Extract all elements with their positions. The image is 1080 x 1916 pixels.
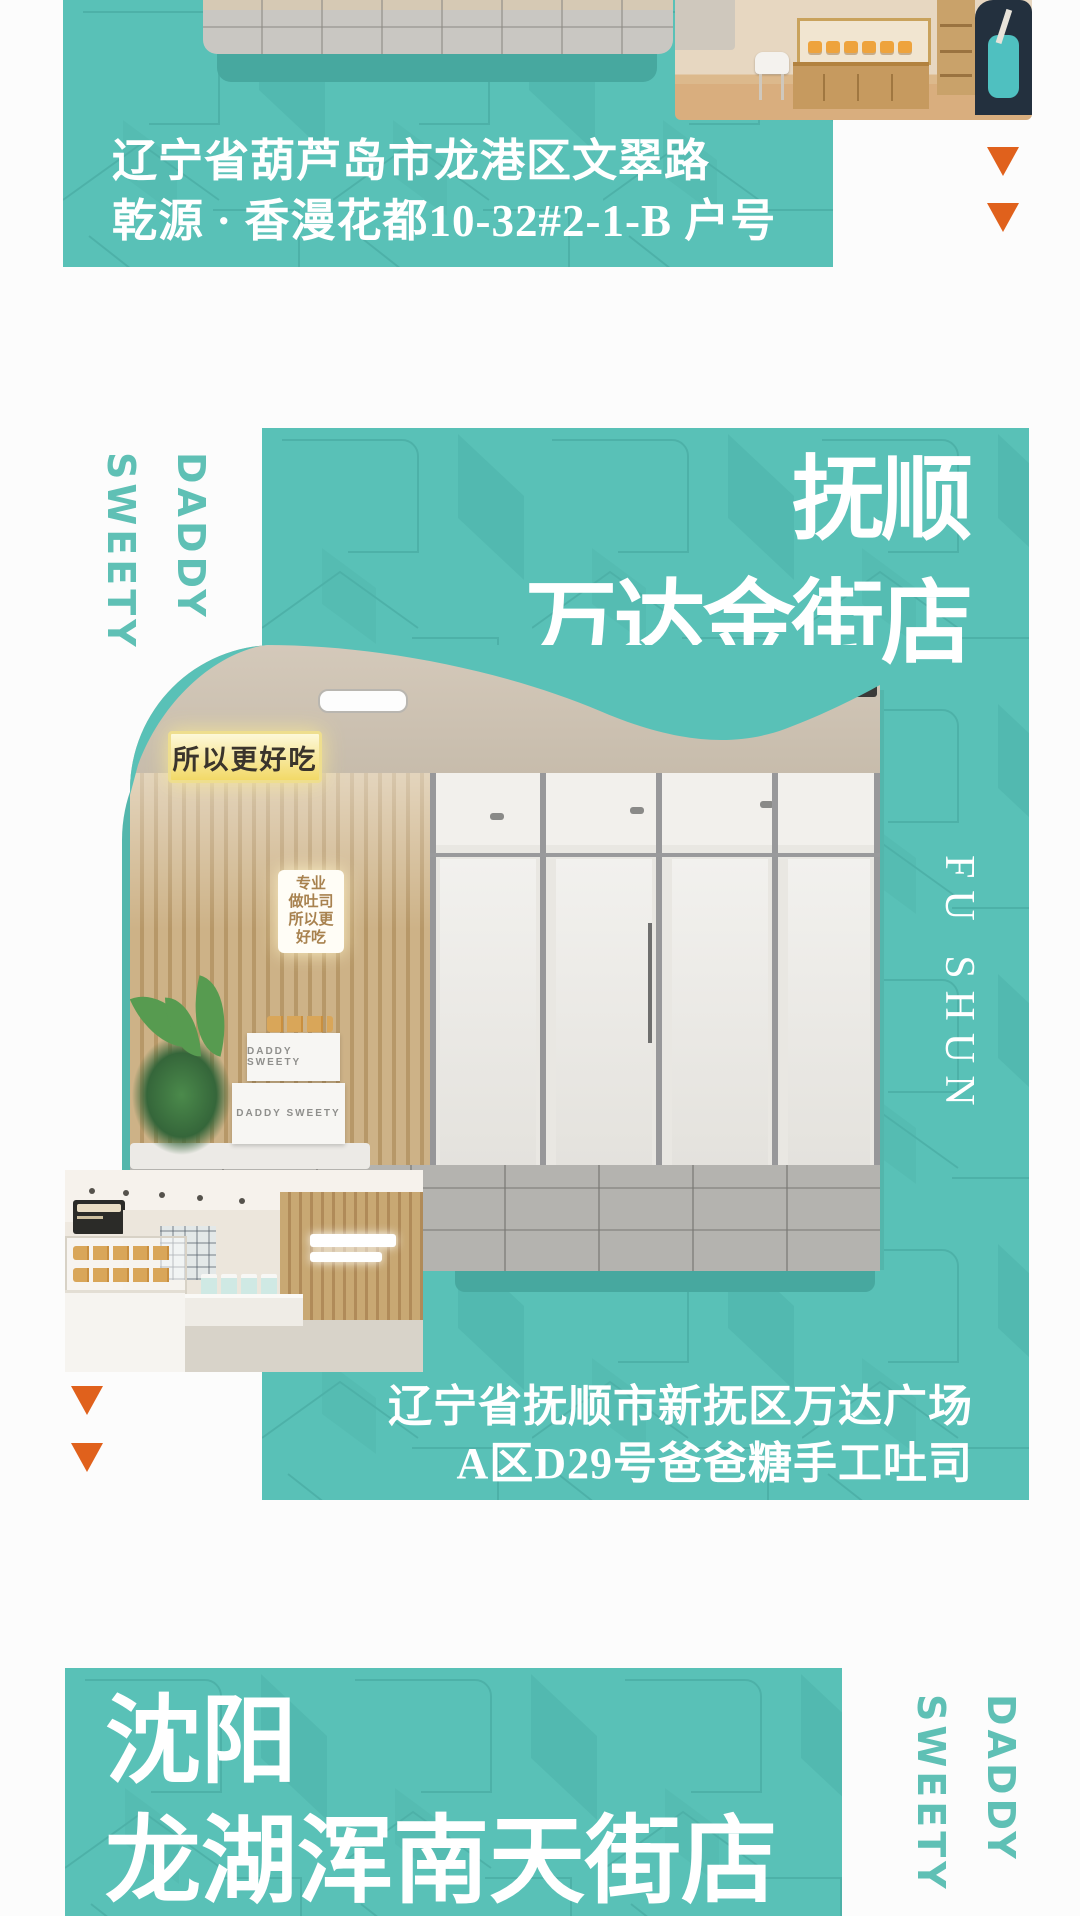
shenyang-title-line2: 龙湖浑南天街店: [105, 1802, 777, 1916]
shenyang-title: 沈阳 龙湖浑南天街店: [105, 1682, 777, 1916]
fushun-interior-photo: [65, 1170, 423, 1372]
down-triangle-icon: [987, 203, 1019, 232]
huludao-address-line1: 辽宁省葫芦岛市龙港区文翠路: [112, 132, 710, 191]
brand-word-sweety: SWEETY: [86, 452, 156, 651]
wall-sign-glow: [310, 1252, 382, 1262]
door-handle-shape: [648, 923, 652, 1043]
brand-vertical-right: DADDY SWEETY: [896, 1694, 1036, 1893]
photo-top-wave: [130, 645, 880, 820]
mascot-figure: [975, 0, 1032, 115]
display-box-label: DADDY SWEETY: [236, 1108, 340, 1119]
menu-screen-shape: [73, 1200, 125, 1234]
shelf-shape: [937, 0, 975, 95]
display-case-base: [793, 62, 929, 109]
display-box-1: DADDY SWEETY: [247, 1033, 340, 1081]
lightbox-line: 好吃: [278, 929, 344, 947]
brand-word-daddy: DADDY: [966, 1694, 1036, 1893]
poster-page: 辽宁省葫芦岛市龙港区文翠路 乾源 · 香漫花都10-32#2-1-B 户号: [0, 0, 1080, 1916]
fushun-address-line1: 辽宁省抚顺市新抚区万达广场: [350, 1378, 973, 1435]
fushun-address: 辽宁省抚顺市新抚区万达广场 A区D29号爸爸糖手工吐司: [350, 1378, 973, 1492]
fushun-address-line2: A区D29号爸爸糖手工吐司: [350, 1435, 973, 1492]
shenyang-title-line1: 沈阳: [105, 1682, 777, 1802]
lightbox-line: 所以更: [278, 911, 344, 929]
brand-word-sweety: SWEETY: [896, 1694, 966, 1893]
brand-vertical-left: DADDY SWEETY: [86, 452, 226, 651]
chair-shape: [755, 52, 789, 74]
bread-row-shape: [267, 1016, 333, 1032]
down-triangle-icon: [71, 1443, 103, 1472]
appliance-shape: [675, 0, 735, 50]
bakery-interior-photo: [675, 0, 1032, 120]
wall-sign-glow: [310, 1234, 396, 1247]
counter-shape: [185, 1294, 303, 1326]
wall-lightbox-sign: 专业 做吐司 所以更 好吃: [278, 870, 344, 953]
brand-word-daddy: DADDY: [156, 452, 226, 651]
lightbox-line: 专业: [278, 875, 344, 893]
huludao-address-line2: 乾源 · 香漫花都10-32#2-1-B 户号: [112, 192, 776, 251]
pastry-case-base: [65, 1290, 185, 1372]
floor-shape: [185, 1320, 423, 1372]
display-box-label: DADDY SWEETY: [247, 1046, 340, 1068]
display-box-2: DADDY SWEETY: [232, 1083, 345, 1144]
down-triangle-icon: [987, 147, 1019, 176]
lightbox-line: 做吐司: [278, 893, 344, 911]
bread-display-glass: [797, 18, 931, 65]
fushun-latin-vertical: FU SHUN: [933, 855, 985, 1118]
storefront-floor-photo: [203, 0, 673, 54]
fushun-title-line1: 抚顺: [420, 438, 970, 562]
down-triangle-icon: [71, 1386, 103, 1415]
pastry-case-glass: [65, 1236, 187, 1294]
glass-storefront: [430, 773, 880, 1165]
